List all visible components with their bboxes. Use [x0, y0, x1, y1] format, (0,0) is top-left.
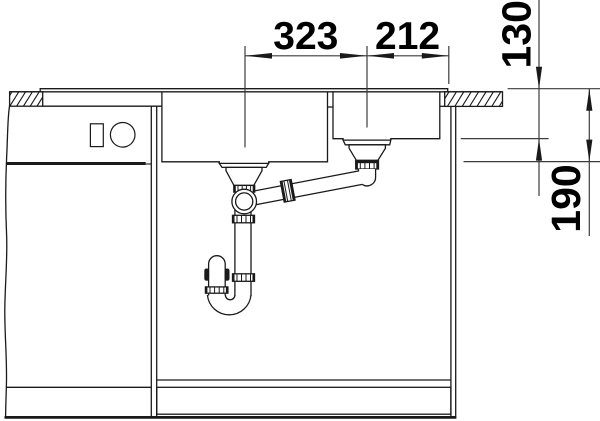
- svg-text:190: 190: [543, 164, 589, 232]
- svg-text:323: 323: [273, 15, 338, 58]
- svg-text:212: 212: [375, 15, 440, 58]
- svg-text:130: 130: [494, 0, 540, 68]
